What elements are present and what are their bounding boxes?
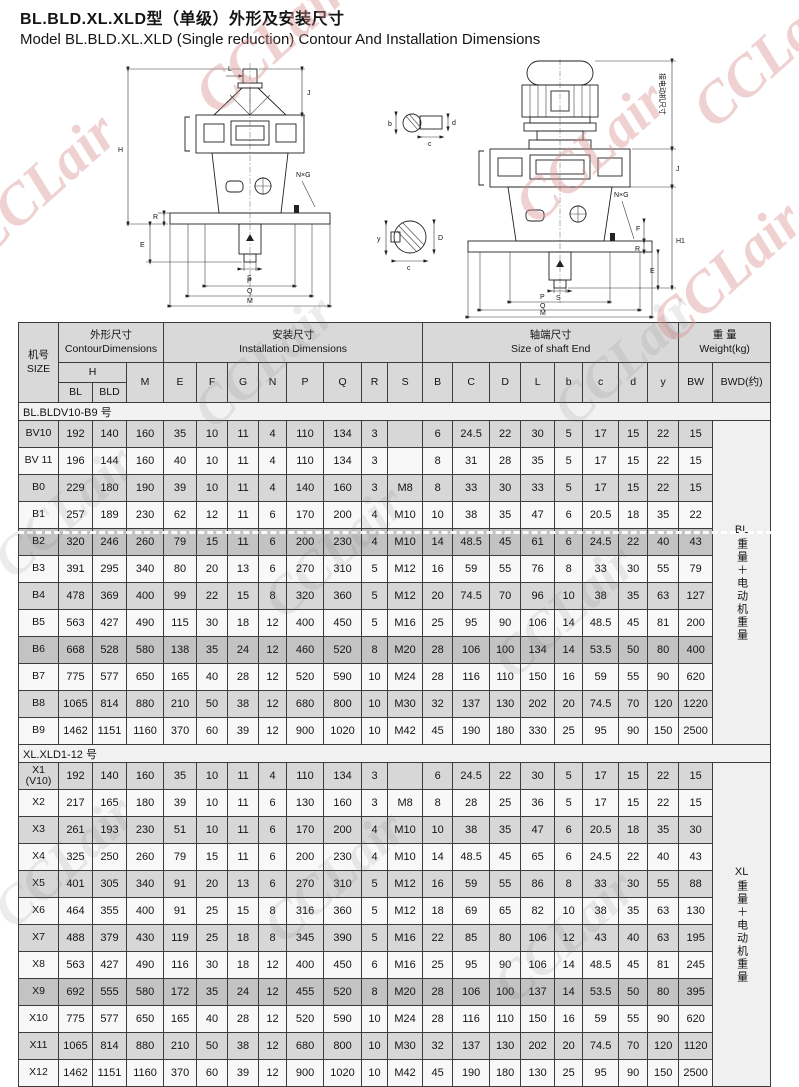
- dim-cell: M12: [388, 556, 423, 583]
- dim-cell: 24: [228, 979, 259, 1006]
- dim-cell: 775: [59, 664, 93, 691]
- dim-cell: 40: [164, 448, 197, 475]
- drawing-bld: 接电动机尺寸 J H1 N×G F R E S P Q: [468, 59, 685, 319]
- dim-cell: 39: [228, 1060, 259, 1087]
- dim-cell: 106: [521, 952, 555, 979]
- dim-cell: 33: [583, 556, 619, 583]
- dim-cell: 11: [228, 421, 259, 448]
- table-row: X1077557765016540281252059010M2428116110…: [19, 1006, 771, 1033]
- dim-cell: 12: [259, 952, 287, 979]
- dim-cell: 10: [197, 790, 228, 817]
- header-col-e: E: [164, 363, 197, 403]
- dim-cell: 65: [521, 844, 555, 871]
- dim-label-e-left: E: [140, 242, 145, 249]
- dim-cell: 6: [555, 844, 583, 871]
- dim-cell: 22: [490, 421, 521, 448]
- dim-cell: 4: [362, 502, 388, 529]
- header-size-en: SIZE: [19, 363, 58, 376]
- dim-cell: 4: [362, 844, 388, 871]
- dim-cell: M8: [388, 475, 423, 502]
- dim-cell: 14: [555, 610, 583, 637]
- dim-cell: 180: [127, 790, 164, 817]
- dim-cell: 22: [648, 448, 679, 475]
- dim-cell: 5: [362, 898, 388, 925]
- dim-cell: 53.5: [583, 637, 619, 664]
- dim-cell: M24: [388, 664, 423, 691]
- dim-cell: 85: [453, 925, 490, 952]
- dim-cell: 379: [93, 925, 127, 952]
- size-cell: BV10: [19, 421, 59, 448]
- dim-label-nxg-right: N×G: [614, 192, 629, 199]
- dim-cell: 680: [287, 1033, 324, 1060]
- dim-cell: 10: [197, 817, 228, 844]
- header-install-zh: 安装尺寸: [164, 329, 422, 342]
- size-cell: BV 11: [19, 448, 59, 475]
- dim-cell: 478: [59, 583, 93, 610]
- page-title-zh: BL.BLD.XL.XLD型（单级）外形及安装尺寸: [20, 5, 540, 29]
- dim-cell: 8: [259, 583, 287, 610]
- dim-cell: 16: [555, 1006, 583, 1033]
- dim-cell: 80: [648, 979, 679, 1006]
- dim-cell: 116: [453, 664, 490, 691]
- header-col-c-small: c: [583, 363, 619, 403]
- dim-cell: 90: [490, 610, 521, 637]
- dim-cell: 110: [287, 763, 324, 790]
- dim-cell: 22: [648, 475, 679, 502]
- dim-cell: 900: [287, 1060, 324, 1087]
- fold-line-artifact: [0, 531, 799, 534]
- dim-cell: 116: [164, 952, 197, 979]
- dim-cell: 8: [259, 925, 287, 952]
- dim-cell: 15: [619, 448, 648, 475]
- dim-cell: 692: [59, 979, 93, 1006]
- dim-cell: 563: [59, 610, 93, 637]
- dim-cell: M30: [388, 691, 423, 718]
- dim-cell: 230: [324, 844, 362, 871]
- dim-label-b-detail: b: [388, 121, 392, 128]
- dim-label-d-detail: d: [452, 120, 456, 127]
- dim-cell: 35: [521, 448, 555, 475]
- dim-cell: 82: [521, 898, 555, 925]
- dim-cell: 230: [127, 502, 164, 529]
- dim-cell: 70: [490, 583, 521, 610]
- dim-cell: 48.5: [453, 844, 490, 871]
- dim-cell: 90: [619, 718, 648, 745]
- dim-cell: 12: [259, 1006, 287, 1033]
- dim-cell: 245: [679, 952, 713, 979]
- dim-cell: 13: [228, 556, 259, 583]
- dim-cell: 8: [259, 898, 287, 925]
- dim-cell: 400: [127, 898, 164, 925]
- dim-cell: 180: [490, 718, 521, 745]
- dim-cell: 320: [287, 583, 324, 610]
- dim-cell: 130: [521, 1060, 555, 1087]
- size-cell: B8: [19, 691, 59, 718]
- header-col-g: G: [228, 363, 259, 403]
- dim-cell: 140: [93, 763, 127, 790]
- dim-cell: 55: [619, 664, 648, 691]
- dim-cell: 51: [164, 817, 197, 844]
- dim-cell: 590: [324, 664, 362, 691]
- dim-cell: 33: [453, 475, 490, 502]
- dim-cell: 340: [127, 871, 164, 898]
- dim-cell: 116: [453, 1006, 490, 1033]
- dim-cell: M24: [388, 1006, 423, 1033]
- weight-note: BL重量＋电动机重量: [713, 421, 771, 745]
- dim-cell: 580: [127, 637, 164, 664]
- dim-cell: 488: [59, 925, 93, 952]
- dim-cell: 193: [93, 817, 127, 844]
- header-col-l: L: [521, 363, 555, 403]
- dim-cell: 12: [259, 979, 287, 1006]
- dim-cell: 650: [127, 664, 164, 691]
- dim-cell: 150: [521, 1006, 555, 1033]
- dim-cell: 28: [423, 637, 453, 664]
- dim-cell: 620: [679, 1006, 713, 1033]
- dim-cell: 250: [93, 844, 127, 871]
- dim-cell: 38: [453, 817, 490, 844]
- dim-cell: 106: [453, 979, 490, 1006]
- dim-cell: 15: [228, 583, 259, 610]
- dim-cell: 230: [127, 817, 164, 844]
- dim-cell: 170: [287, 502, 324, 529]
- dim-cell: 520: [324, 637, 362, 664]
- size-cell: X5: [19, 871, 59, 898]
- dim-cell: 520: [324, 979, 362, 1006]
- table-row: X12146211511160370603912900102010M424519…: [19, 1060, 771, 1087]
- dim-cell: 5: [362, 556, 388, 583]
- size-cell: B6: [19, 637, 59, 664]
- dim-cell: 30: [197, 952, 228, 979]
- dim-cell: 33: [521, 475, 555, 502]
- dim-cell: [388, 763, 423, 790]
- dim-cell: 10: [423, 817, 453, 844]
- dim-cell: 18: [619, 817, 648, 844]
- table-row: B022918019039101141401603M88333033517152…: [19, 475, 771, 502]
- dim-cell: 5: [362, 583, 388, 610]
- dim-cell: 260: [127, 844, 164, 871]
- dim-cell: 48.5: [583, 952, 619, 979]
- dim-cell: 15: [619, 763, 648, 790]
- dim-cell: 62: [164, 502, 197, 529]
- dim-cell: 12: [259, 1033, 287, 1060]
- header-col-n: N: [259, 363, 287, 403]
- dim-cell: 95: [583, 1060, 619, 1087]
- dim-cell: 80: [490, 925, 521, 952]
- dim-cell: 1462: [59, 1060, 93, 1087]
- dim-cell: 1160: [127, 718, 164, 745]
- dim-cell: 28: [423, 664, 453, 691]
- dim-cell: 170: [287, 817, 324, 844]
- dim-cell: 1020: [324, 718, 362, 745]
- dim-cell: 192: [59, 763, 93, 790]
- dim-cell: 200: [679, 610, 713, 637]
- header-col-b: B: [423, 363, 453, 403]
- dim-cell: 45: [490, 844, 521, 871]
- dim-cell: 59: [453, 871, 490, 898]
- dim-cell: 3: [362, 763, 388, 790]
- dim-cell: M10: [388, 502, 423, 529]
- dim-cell: 10: [362, 664, 388, 691]
- dim-cell: M10: [388, 817, 423, 844]
- dim-cell: 190: [453, 1060, 490, 1087]
- dim-cell: 63: [648, 583, 679, 610]
- table-row: B447836940099221583203605M122074.5709610…: [19, 583, 771, 610]
- dim-cell: 401: [59, 871, 93, 898]
- dim-cell: 106: [521, 925, 555, 952]
- dim-cell: M16: [388, 610, 423, 637]
- dim-cell: M12: [388, 871, 423, 898]
- dim-cell: 53.5: [583, 979, 619, 1006]
- dim-cell: 15: [679, 448, 713, 475]
- dim-cell: 45: [619, 952, 648, 979]
- dim-cell: 1065: [59, 1033, 93, 1060]
- dim-cell: 137: [521, 979, 555, 1006]
- header-group-contour: 外形尺寸 ContourDimensions: [59, 323, 164, 363]
- dim-cell: 33: [583, 871, 619, 898]
- dim-cell: 91: [164, 871, 197, 898]
- dim-cell: 127: [679, 583, 713, 610]
- dim-cell: 28: [423, 1006, 453, 1033]
- dim-cell: 39: [228, 718, 259, 745]
- header-size-zh: 机号: [19, 349, 58, 362]
- header-col-m: M: [127, 363, 164, 403]
- technical-drawings: H E R L J N×G S P: [0, 55, 799, 320]
- dim-cell: 32: [423, 1033, 453, 1060]
- dim-cell: 90: [648, 664, 679, 691]
- dim-cell: 200: [287, 844, 324, 871]
- dim-cell: 28: [228, 1006, 259, 1033]
- dim-cell: 39: [164, 790, 197, 817]
- table-row: X432525026079151162002304M101448.5456562…: [19, 844, 771, 871]
- dim-cell: 390: [324, 925, 362, 952]
- dim-cell: 55: [648, 871, 679, 898]
- dim-cell: 800: [324, 691, 362, 718]
- dim-cell: 340: [127, 556, 164, 583]
- dim-cell: 360: [324, 898, 362, 925]
- dim-cell: 450: [324, 610, 362, 637]
- dim-cell: 50: [197, 691, 228, 718]
- dim-cell: 110: [490, 664, 521, 691]
- dim-label-h-left: H: [118, 147, 123, 154]
- table-row: X85634274901163018124004506M162595901061…: [19, 952, 771, 979]
- dim-cell: 370: [164, 718, 197, 745]
- dim-cell: 45: [619, 610, 648, 637]
- dim-cell: M42: [388, 718, 423, 745]
- size-cell: B1: [19, 502, 59, 529]
- dim-cell: 1220: [679, 691, 713, 718]
- dim-cell: 355: [93, 898, 127, 925]
- dim-cell: 400: [287, 952, 324, 979]
- dim-cell: 5: [555, 763, 583, 790]
- size-cell: X9: [19, 979, 59, 1006]
- dim-cell: 8: [555, 871, 583, 898]
- size-cell: X3: [19, 817, 59, 844]
- dim-cell: 80: [648, 637, 679, 664]
- dim-cell: 25: [197, 925, 228, 952]
- dim-cell: 563: [59, 952, 93, 979]
- size-cell: X4: [19, 844, 59, 871]
- dim-cell: 190: [127, 475, 164, 502]
- dim-cell: 110: [287, 421, 324, 448]
- header-col-q: Q: [324, 363, 362, 403]
- dim-cell: 257: [59, 502, 93, 529]
- dim-cell: 138: [164, 637, 197, 664]
- dim-cell: 8: [423, 475, 453, 502]
- dim-cell: 17: [583, 448, 619, 475]
- dim-cell: M16: [388, 952, 423, 979]
- dim-cell: 10: [555, 583, 583, 610]
- dim-cell: 800: [324, 1033, 362, 1060]
- dim-cell: 30: [521, 421, 555, 448]
- dim-cell: 55: [490, 556, 521, 583]
- dim-cell: 464: [59, 898, 93, 925]
- size-cell: X12: [19, 1060, 59, 1087]
- dim-cell: 144: [93, 448, 127, 475]
- dim-cell: 11: [228, 763, 259, 790]
- dim-cell: 2500: [679, 1060, 713, 1087]
- dim-cell: 24.5: [453, 763, 490, 790]
- dim-cell: 668: [59, 637, 93, 664]
- dim-cell: 28: [228, 664, 259, 691]
- header-col-bwd: BWD(约): [713, 363, 771, 403]
- dim-cell: 35: [490, 817, 521, 844]
- dim-cell: 35: [164, 421, 197, 448]
- dim-cell: 119: [164, 925, 197, 952]
- header-col-bl: BL: [59, 383, 93, 403]
- dim-cell: 14: [555, 637, 583, 664]
- dim-cell: 10: [197, 421, 228, 448]
- dim-cell: 10: [362, 1033, 388, 1060]
- dim-cell: 261: [59, 817, 93, 844]
- dim-cell: 192: [59, 421, 93, 448]
- dim-cell: 316: [287, 898, 324, 925]
- dim-cell: 24.5: [453, 421, 490, 448]
- table-row: X1 (V10)19214016035101141101343624.52230…: [19, 763, 771, 790]
- dim-label-f-right: F: [636, 226, 640, 233]
- dim-cell: M30: [388, 1033, 423, 1060]
- dim-cell: 90: [619, 1060, 648, 1087]
- dim-label-r-right: R: [635, 246, 640, 253]
- dim-cell: 25: [423, 610, 453, 637]
- dim-cell: 310: [324, 871, 362, 898]
- dim-cell: 25: [490, 790, 521, 817]
- dim-label-h1-right: H1: [676, 238, 685, 245]
- dim-label-dd-detail: D: [438, 235, 443, 242]
- dim-cell: 8: [362, 979, 388, 1006]
- dim-label-motor-right: 接电动机尺寸: [658, 73, 667, 115]
- header-col-y: y: [648, 363, 679, 403]
- dim-cell: 106: [453, 637, 490, 664]
- dim-cell: 30: [197, 610, 228, 637]
- dim-cell: 60: [197, 1060, 228, 1087]
- dim-cell: 59: [583, 664, 619, 691]
- dim-cell: 74.5: [453, 583, 490, 610]
- dim-cell: 200: [324, 502, 362, 529]
- weight-note-series: XL: [713, 866, 770, 878]
- dim-cell: 10: [362, 1006, 388, 1033]
- dim-cell: 22: [423, 925, 453, 952]
- dim-cell: 15: [679, 475, 713, 502]
- dim-cell: 24.5: [583, 844, 619, 871]
- dim-cell: 3: [362, 790, 388, 817]
- dim-cell: 880: [127, 1033, 164, 1060]
- dim-cell: [388, 448, 423, 475]
- dim-cell: 3: [362, 448, 388, 475]
- dim-cell: 202: [521, 1033, 555, 1060]
- dim-cell: 391: [59, 556, 93, 583]
- header-size: 机号 SIZE: [19, 323, 59, 403]
- table-row: X11106581488021050381268080010M303213713…: [19, 1033, 771, 1060]
- dim-cell: 47: [521, 817, 555, 844]
- dim-cell: 134: [324, 448, 362, 475]
- dim-cell: 6: [259, 844, 287, 871]
- dim-cell: 12: [259, 664, 287, 691]
- dim-cell: 40: [197, 664, 228, 691]
- dim-cell: 5: [555, 448, 583, 475]
- dimensions-table-body: BL.BLDV10-B9 号BV101921401603510114110134…: [19, 403, 771, 1087]
- section-label-row: BL.BLDV10-B9 号: [19, 403, 771, 421]
- dim-cell: 35: [619, 898, 648, 925]
- dim-cell: 50: [619, 637, 648, 664]
- dim-cell: 160: [324, 475, 362, 502]
- dim-cell: 38: [583, 583, 619, 610]
- dim-cell: 65: [490, 898, 521, 925]
- dim-cell: 165: [164, 1006, 197, 1033]
- dim-cell: 330: [521, 718, 555, 745]
- dim-cell: 210: [164, 1033, 197, 1060]
- dim-cell: 55: [648, 556, 679, 583]
- dim-cell: 25: [423, 952, 453, 979]
- header-col-h: H: [59, 363, 127, 383]
- dim-label-c-detail: c: [428, 141, 432, 148]
- dim-cell: 4: [259, 763, 287, 790]
- dim-cell: 900: [287, 718, 324, 745]
- table-row: B777557765016540281252059010M24281161101…: [19, 664, 771, 691]
- size-cell: B4: [19, 583, 59, 610]
- dim-cell: 15: [679, 763, 713, 790]
- dim-cell: 10: [423, 502, 453, 529]
- dim-cell: 48.5: [583, 610, 619, 637]
- dim-cell: 400: [679, 637, 713, 664]
- dim-cell: 180: [93, 475, 127, 502]
- header-shaft-zh: 轴端尺寸: [423, 329, 678, 342]
- dim-cell: 35: [164, 763, 197, 790]
- dim-cell: 140: [287, 475, 324, 502]
- header-install-en: Installation Dimensions: [164, 343, 422, 356]
- drawing-shaft-detail-small: b d c: [388, 114, 456, 148]
- dim-cell: 11: [228, 817, 259, 844]
- dim-cell: 18: [423, 898, 453, 925]
- dim-cell: 15: [619, 475, 648, 502]
- dim-cell: 22: [648, 790, 679, 817]
- dim-cell: 196: [59, 448, 93, 475]
- dim-cell: 30: [490, 475, 521, 502]
- dim-cell: 8: [423, 448, 453, 475]
- size-cell: X7: [19, 925, 59, 952]
- dim-cell: 38: [583, 898, 619, 925]
- header-col-r: R: [362, 363, 388, 403]
- table-row: X7488379430119251883453905M1622858010612…: [19, 925, 771, 952]
- drawing-shaft-detail-large: y D c: [377, 221, 443, 272]
- dim-cell: M12: [388, 898, 423, 925]
- dim-cell: 28: [453, 790, 490, 817]
- dim-label-q-right: Q: [540, 303, 546, 310]
- table-row: X540130534091201362703105M12165955868333…: [19, 871, 771, 898]
- dim-cell: 370: [164, 1060, 197, 1087]
- dim-cell: 202: [521, 691, 555, 718]
- dim-cell: 814: [93, 691, 127, 718]
